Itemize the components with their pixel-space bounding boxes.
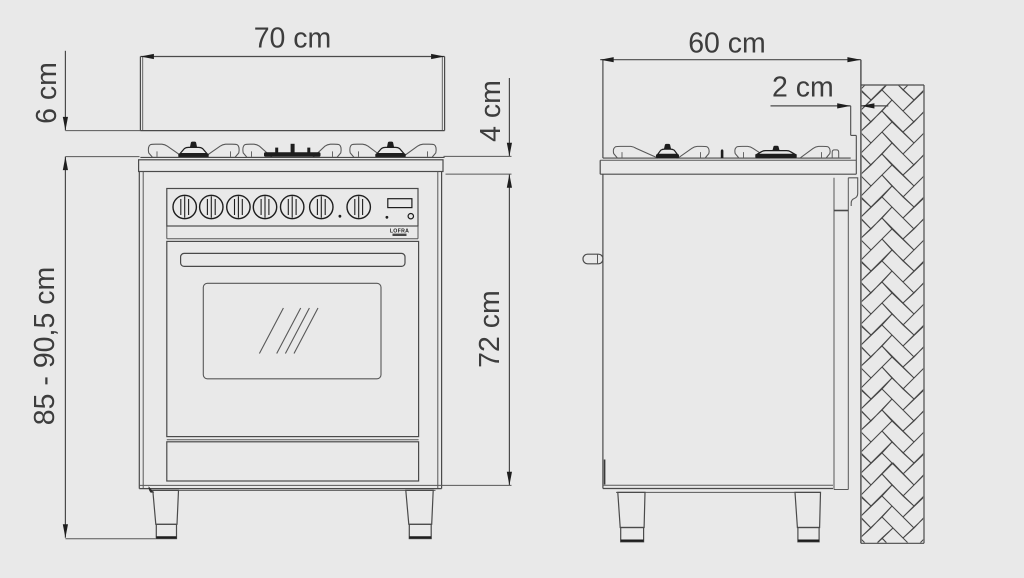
svg-text:4 cm: 4 cm [475,80,507,142]
svg-text:70 cm: 70 cm [254,23,332,55]
svg-text:85 - 90,5 cm: 85 - 90,5 cm [29,267,61,425]
svg-text:72 cm: 72 cm [474,290,506,368]
svg-text:2 cm: 2 cm [772,72,834,104]
svg-text:6 cm: 6 cm [31,62,63,124]
svg-text:60 cm: 60 cm [688,28,766,60]
